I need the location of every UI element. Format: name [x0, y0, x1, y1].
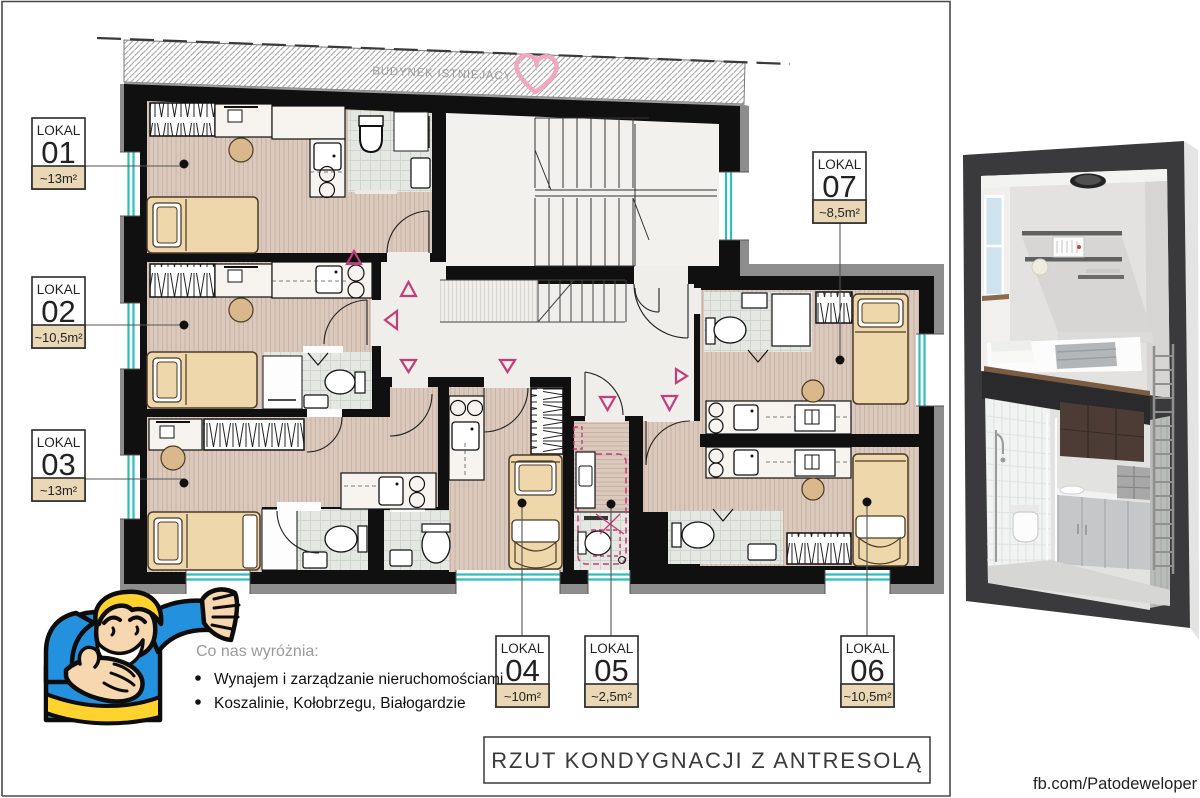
- svg-text:03: 03: [41, 447, 75, 482]
- svg-text:05: 05: [594, 653, 628, 688]
- svg-text:RZUT KONDYGNACJI Z ANTRESOLĄ: RZUT KONDYGNACJI Z ANTRESOLĄ: [491, 748, 922, 773]
- svg-text:04: 04: [505, 653, 539, 688]
- svg-text:07: 07: [822, 169, 856, 204]
- svg-text:~13m²: ~13m²: [40, 483, 78, 498]
- svg-text:Co nas wyróżnia:: Co nas wyróżnia:: [196, 643, 319, 660]
- svg-text:Wynajem i zarządzanie nierucho: Wynajem i zarządzanie nieruchomościami: [214, 671, 503, 688]
- svg-text:~10,5m²: ~10,5m²: [34, 330, 83, 345]
- svg-text:~10m²: ~10m²: [504, 689, 542, 704]
- svg-text:02: 02: [41, 294, 75, 329]
- svg-text:Koszalinie, Kołobrzegu, Białog: Koszalinie, Kołobrzegu, Białogardzie: [214, 695, 466, 712]
- svg-text:~10,5m²: ~10,5m²: [843, 689, 892, 704]
- svg-text:~8,5m²: ~8,5m²: [819, 205, 860, 220]
- svg-text:~2,5m²: ~2,5m²: [591, 689, 632, 704]
- svg-text:fb.com/Patodeweloper: fb.com/Patodeweloper: [1033, 775, 1198, 793]
- svg-text:~13m²: ~13m²: [40, 171, 78, 186]
- svg-text:01: 01: [41, 135, 75, 170]
- svg-text:06: 06: [850, 653, 884, 688]
